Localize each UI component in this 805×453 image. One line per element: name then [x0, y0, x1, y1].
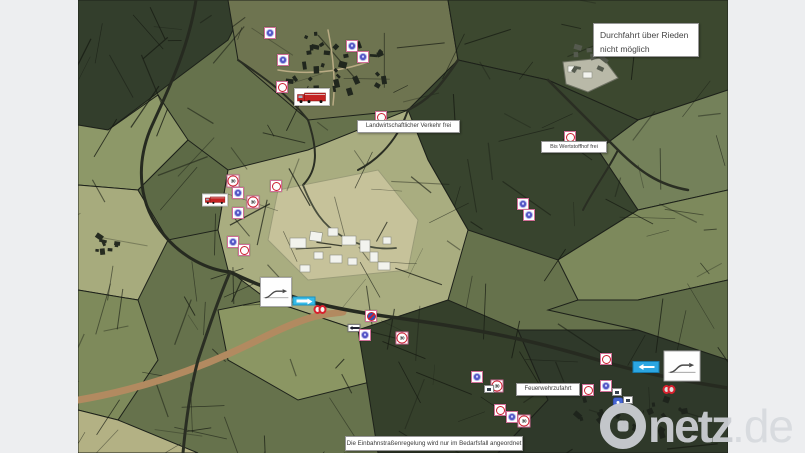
sign-blue-icon	[232, 207, 244, 219]
sign-ring-icon	[238, 244, 250, 256]
aerial-map-svg	[78, 0, 728, 453]
sign-truckL-icon	[294, 88, 330, 106]
sign-ring-icon	[600, 353, 612, 365]
sign-tinybox-icon	[484, 385, 494, 393]
sign-blue-icon	[600, 380, 612, 392]
map-label-landwirtschaft: Landwirtschaftlicher Verkehr frei	[357, 120, 460, 133]
sign-thirty-icon: 30	[518, 415, 531, 428]
sign-ring-icon	[494, 404, 506, 416]
sign-ring-icon	[582, 384, 594, 396]
sign-blue-icon	[264, 27, 276, 39]
watermark-tld: .de	[732, 399, 793, 453]
sign-ring-icon	[270, 180, 282, 192]
onetz-logo-o	[600, 403, 646, 449]
sign-diagram-icon	[260, 277, 292, 307]
map-label-wertstoffhof: Bis Wertstoffhof frei	[541, 141, 607, 153]
sign-redpill-icon	[314, 304, 327, 316]
sign-nostop-icon	[365, 310, 377, 322]
sign-redpill-icon	[663, 384, 676, 396]
article-image: Durchfahrt über Rieden nicht möglichLand…	[0, 0, 805, 453]
watermark-name: netz	[648, 399, 732, 453]
sign-blue-icon	[471, 371, 483, 383]
onetz-watermark: netz.de	[600, 399, 793, 453]
sign-thirty-icon: 30	[247, 196, 260, 209]
sign-blue-icon	[232, 187, 244, 199]
sign-ring-icon	[276, 81, 288, 93]
sign-blue-icon	[277, 54, 289, 66]
sign-onewayR-icon	[293, 297, 316, 306]
sign-blue-icon	[523, 209, 535, 221]
sign-truckS-icon	[202, 194, 228, 207]
sign-blue-icon	[506, 411, 518, 423]
sign-blue-icon	[357, 51, 369, 63]
sign-tinybox-icon	[612, 388, 622, 396]
sign-thirty-icon: 30	[227, 175, 240, 188]
sign-onewayL-icon	[633, 361, 660, 373]
map-label-feuerwehr: Feuerwehrzufahrt	[516, 383, 580, 396]
sign-diagram-icon	[664, 351, 701, 382]
map-label-durchfahrt: Durchfahrt über Rieden nicht möglich	[593, 23, 699, 57]
sign-blue-icon	[359, 329, 371, 341]
sign-thirty-icon: 30	[396, 332, 409, 345]
aerial-map	[78, 0, 728, 453]
map-label-einbahn: Die Einbahnstraßenregelung wird nur im B…	[345, 436, 523, 451]
